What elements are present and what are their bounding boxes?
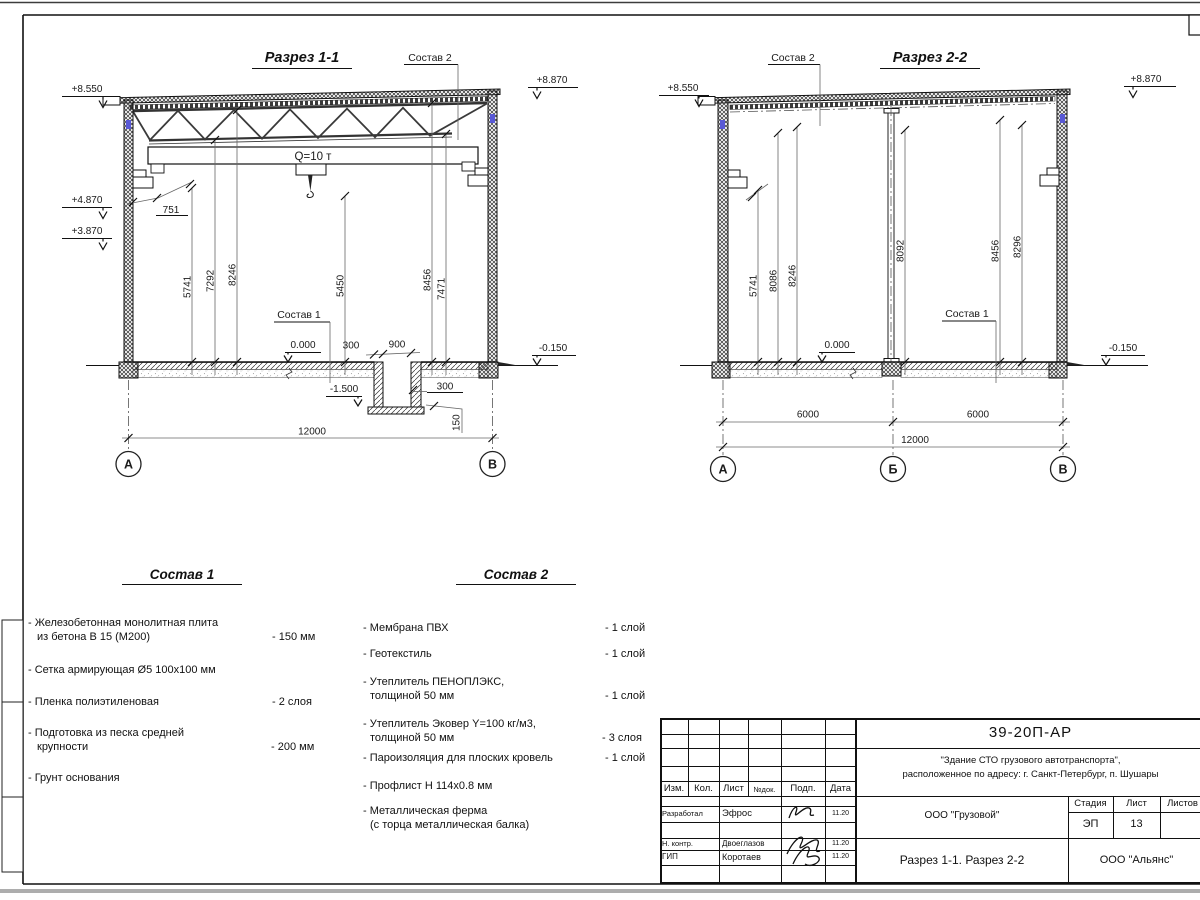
- elevation-label: +8.870: [537, 75, 568, 86]
- wall-left: [124, 100, 133, 362]
- stage-header: Стадия: [1068, 798, 1113, 809]
- section-1-title: Разрез 1-1: [252, 50, 352, 69]
- dim-label: 6000: [797, 410, 820, 421]
- dim-label: 8456: [423, 268, 434, 291]
- dim-label: 900: [389, 340, 406, 351]
- list-item: - Металлическая ферма: [363, 805, 487, 817]
- composition-1-title: Состав 1: [122, 567, 242, 585]
- sheet-header: Лист: [1113, 798, 1160, 809]
- stage-value: ЭП: [1068, 818, 1113, 830]
- section-2-2: 5741 8086 8246 8092 8456 8296 +8.550 +8.…: [659, 52, 1176, 482]
- dim-label: 5741: [183, 275, 194, 298]
- crane-capacity-label: Q=10 т: [295, 151, 333, 163]
- drawing-sheet: Q=10 т: [0, 0, 1200, 900]
- elevation-label: 0.000: [290, 340, 315, 351]
- list-item-value: - 150 мм: [272, 631, 315, 643]
- vertical-dimensions: 5741 8086 8246 8092 8456 8296: [749, 116, 1027, 375]
- elevation-label: +8.870: [1131, 74, 1162, 85]
- axis-label: А: [718, 463, 727, 477]
- dim-label: 8092: [896, 239, 907, 262]
- signature-others: [787, 837, 820, 865]
- list-item: - Утеплитель ПЕНОПЛЭКС,: [363, 676, 504, 688]
- list-item: - Профлист Н 114х0.8 мм: [363, 780, 492, 792]
- list-item: - Сетка армирующая Ø5 100х100 мм: [28, 664, 216, 676]
- axis-label: А: [124, 458, 133, 472]
- col-header-data: Дата: [825, 783, 856, 794]
- dim-label: 5450: [336, 274, 347, 297]
- col-header-kol: Кол.: [688, 783, 719, 794]
- column-axis-b: [884, 106, 899, 362]
- dim-label: 751: [163, 205, 180, 216]
- leader-label: Состав 1: [945, 308, 989, 320]
- list-item-value: - 2 слоя: [272, 696, 312, 708]
- list-item: крупности: [37, 741, 88, 753]
- list-item: из бетона В 15 (М200): [37, 631, 150, 643]
- dim-label: 12000: [298, 427, 326, 438]
- sheet-number: 13: [1113, 818, 1160, 830]
- axis-label: Б: [889, 463, 898, 477]
- list-item: толщиной 50 мм: [370, 732, 454, 744]
- list-item-value: - 1 слой: [605, 690, 645, 702]
- paper-edge-strip: [0, 889, 1200, 893]
- dim-label: 8246: [788, 264, 799, 287]
- steel-truss: [133, 103, 487, 144]
- elevation-label: +8.550: [668, 83, 699, 94]
- wall-right: [488, 91, 497, 362]
- span-dimension-s1: 12000 А В: [116, 380, 505, 477]
- list-item-value: - 1 слой: [605, 622, 645, 634]
- dim-label: 8086: [769, 269, 780, 292]
- embed-part-blue: [490, 114, 495, 123]
- row-date: 11.20: [825, 853, 856, 860]
- elevation-label: 0.000: [824, 340, 849, 351]
- elevation-label: -0.150: [1109, 343, 1138, 354]
- list-item: - Пленка полиэтиленовая: [28, 696, 159, 708]
- crane-hook: [307, 191, 313, 198]
- document-number: 39-20П-АР: [856, 724, 1200, 741]
- wall-left: [718, 100, 728, 362]
- project-name-line1: "Здание СТО грузового автотранспорта",: [856, 755, 1200, 766]
- project-name-line2: расположенное по адресу: г. Санкт-Петерб…: [856, 769, 1200, 780]
- dim-label: 8456: [991, 239, 1002, 262]
- leader-label: Состав 2: [771, 52, 815, 64]
- elevation-label: -0.150: [539, 343, 568, 354]
- list-item-value: - 200 мм: [271, 741, 314, 753]
- signature-efros: [789, 807, 814, 818]
- dim-label: 8296: [1013, 235, 1024, 258]
- dim-label: 300: [343, 341, 360, 352]
- floor-structure: [680, 362, 1148, 379]
- dim-label: 150: [452, 414, 463, 431]
- embed-part-blue: [1060, 114, 1065, 123]
- col-header-list: Лист: [719, 783, 748, 794]
- list-item: - Железобетонная монолитная плита: [28, 617, 218, 629]
- sheet-title: Разрез 1-1. Разрез 2-2: [856, 853, 1068, 867]
- embed-part-blue: [126, 120, 131, 129]
- list-item: - Грунт основания: [28, 772, 120, 784]
- leader-label: Состав 2: [408, 52, 452, 64]
- list-item: - Геотекстиль: [363, 648, 432, 660]
- axis-label: В: [488, 458, 497, 472]
- span-dimensions-s2: 6000 6000 12000 А Б В: [711, 380, 1076, 482]
- elevation-marks-s2: +8.550 +8.870 0.000 -0.150: [659, 74, 1176, 365]
- section-2-title: Разрез 2-2: [880, 50, 980, 69]
- list-item: - Подготовка из песка средней: [28, 727, 184, 739]
- client-name: ООО "Грузовой": [856, 810, 1068, 821]
- dim-label: 7471: [437, 277, 448, 300]
- list-item-value: - 1 слой: [605, 752, 645, 764]
- row-role: Н. контр.: [662, 839, 719, 848]
- list-item: толщиной 50 мм: [370, 690, 454, 702]
- pit-dimensions: 300 900 300 150: [343, 340, 463, 434]
- row-date: 11.20: [825, 810, 856, 817]
- leader-label: Состав 1: [277, 309, 321, 321]
- list-item: - Мембрана ПВХ: [363, 622, 448, 634]
- dim-label: 300: [437, 382, 454, 393]
- composition-2-title: Состав 2: [456, 567, 576, 585]
- elevation-label: +8.550: [72, 84, 103, 95]
- dim-label: 6000: [967, 410, 990, 421]
- row-name: Коротаев: [722, 852, 781, 862]
- row-date: 11.20: [825, 840, 856, 847]
- elevation-label: -1.500: [330, 384, 359, 395]
- corner-stamp-box: [1189, 15, 1200, 35]
- crane-beam: Q=10 т: [148, 147, 478, 198]
- row-name: Эфрос: [722, 808, 781, 819]
- col-header-izm: Изм.: [660, 783, 688, 794]
- company-name: ООО "Альянс": [1068, 854, 1200, 866]
- col-header-podp: Подп.: [781, 783, 825, 794]
- sheets-header: Листов: [1160, 798, 1200, 809]
- embed-part-blue: [720, 120, 725, 129]
- floor-structure: [86, 362, 558, 379]
- list-item: (с торца металлическая балка): [370, 819, 529, 831]
- row-role: ГИП: [662, 852, 719, 861]
- list-item-value: - 3 слоя: [602, 732, 642, 744]
- signatures: [781, 796, 825, 884]
- dim-label: 8246: [228, 263, 239, 286]
- title-block: Изм. Кол. Лист №док. Подп. Дата Разработ…: [660, 718, 1200, 884]
- elevation-marks-s1: +8.550 +8.870 +4.870 +3.870 0.000 -0.150…: [62, 75, 578, 406]
- wall-right: [1057, 91, 1067, 362]
- list-item: - Утеплитель Эковер Y=100 кг/м3,: [363, 718, 536, 730]
- list-item-value: - 1 слой: [605, 648, 645, 660]
- dim-label: 7292: [206, 269, 217, 292]
- axis-label: В: [1058, 463, 1067, 477]
- section-1-1: Q=10 т: [62, 52, 578, 477]
- dim-label: 5741: [749, 274, 760, 297]
- dim-label: 12000: [901, 435, 929, 446]
- row-role: Разработал: [662, 809, 719, 818]
- col-header-ndoc: №док.: [748, 785, 781, 794]
- list-item: - Пароизоляция для плоских кровель: [363, 752, 553, 764]
- elevation-label: +3.870: [72, 226, 103, 237]
- row-name: Двоеглазов: [722, 839, 781, 848]
- elevation-label: +4.870: [72, 195, 103, 206]
- leader-roof-s2: Состав 2: [768, 52, 820, 126]
